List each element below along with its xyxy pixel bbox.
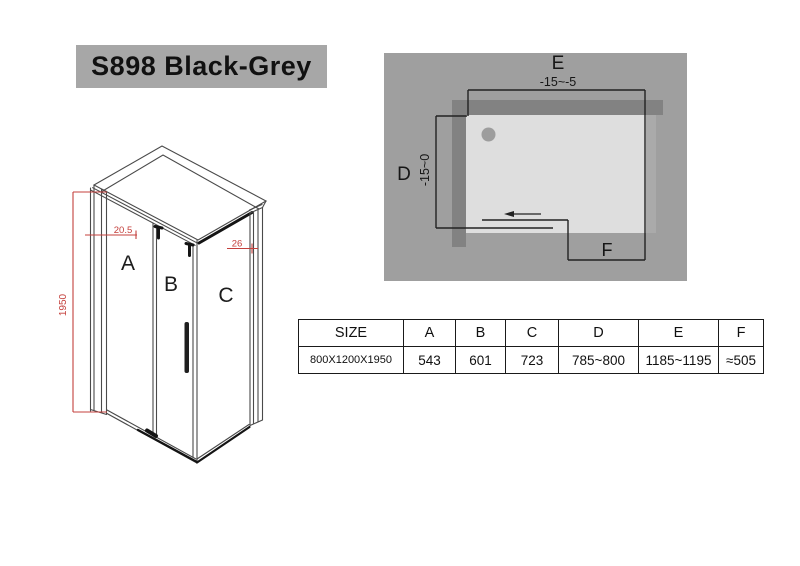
dim-top-c-label: 26 [232,239,243,250]
title-banner: S898 Black-Grey [76,45,327,88]
table-header-row: SIZE A B C D E F [299,320,764,347]
bottom-rail [107,410,250,463]
plan-value-e: -15~-5 [540,75,577,89]
table-cell-size: 800X1200X1950 [299,347,404,374]
table-cell: 543 [404,347,456,374]
table-header-cell: F [719,320,764,347]
panel-b-label: B [164,273,178,296]
table-header-cell: B [456,320,506,347]
panel-c-label: C [218,284,233,307]
table-cell: 785~800 [559,347,639,374]
corner-post [193,241,197,462]
wall-left [452,100,466,247]
table-cell: 723 [506,347,559,374]
panel-divider [153,223,157,437]
panel-a-label: A [121,252,135,275]
table-header-cell: C [506,320,559,347]
table-header-cell: E [639,320,719,347]
table-header-cell: SIZE [299,320,404,347]
plan-value-d: -15~0 [418,154,432,186]
left-wall-profile [91,186,107,415]
isometric-drawing: 1950 20.5 26 A B C [50,135,285,475]
size-table: SIZE A B C D E F 800X1200X1950 543 601 7… [298,319,764,374]
right-wall-profile [250,201,267,426]
glass-panel-edge [646,115,656,233]
plan-label-e: E [552,53,565,74]
plan-view: E -15~-5 D -15~0 F [380,50,690,285]
plan-label-d: D [397,164,411,185]
dim-height-label: 1950 [58,293,69,316]
table-header-cell: D [559,320,639,347]
plan-label-f: F [602,240,613,260]
table-header-cell: A [404,320,456,347]
table-cell: 1185~1195 [639,347,719,374]
table-cell: 601 [456,347,506,374]
product-spec-sheet: S898 Black-Grey [0,0,800,566]
door-handle [185,322,190,373]
wall-top [452,100,663,115]
drain-icon [482,128,496,142]
dim-top-a-label: 20.5 [114,225,133,236]
product-title: S898 Black-Grey [91,51,312,82]
table-row: 800X1200X1950 543 601 723 785~800 1185~1… [299,347,764,374]
table-cell: ≈505 [719,347,764,374]
